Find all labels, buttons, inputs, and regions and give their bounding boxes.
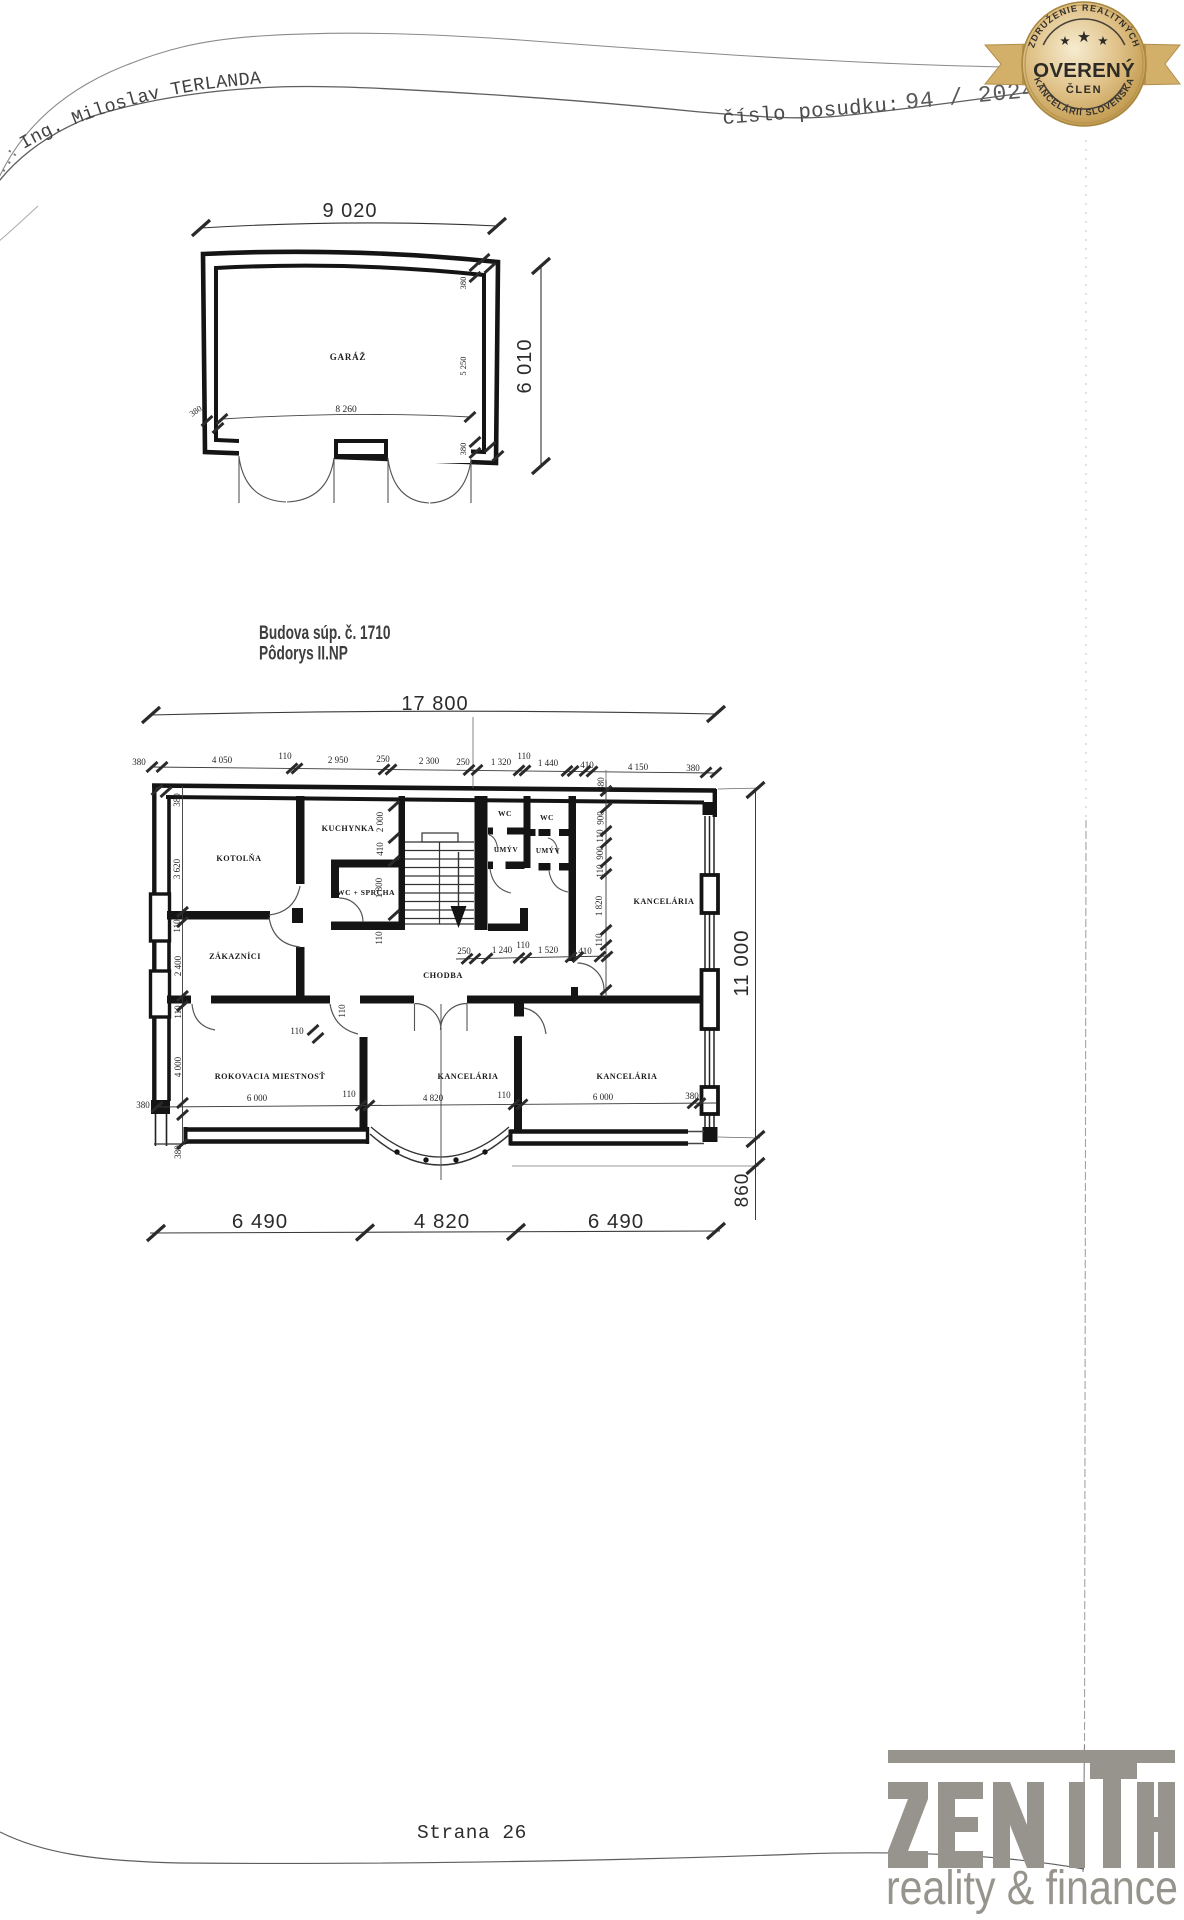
svg-text:110: 110 [517, 751, 531, 761]
svg-text:380: 380 [136, 1100, 150, 1110]
svg-text:OVERENÝ: OVERENÝ [1033, 58, 1135, 82]
svg-text:110: 110 [595, 829, 605, 843]
svg-text:4 050: 4 050 [212, 755, 233, 765]
svg-text:★: ★ [1097, 34, 1108, 48]
svg-text:3 620: 3 620 [172, 858, 182, 879]
svg-text:KANCELÁRIA: KANCELÁRIA [634, 896, 695, 906]
svg-text:6 490: 6 490 [232, 1210, 288, 1233]
svg-text:1 240: 1 240 [492, 945, 513, 955]
svg-text:410: 410 [375, 842, 385, 856]
svg-text:Budova súp. č. 1710: Budova súp. č. 1710 [259, 622, 390, 644]
svg-text:WC: WC [540, 813, 554, 822]
svg-text:KANCELÁRIA: KANCELÁRIA [597, 1071, 658, 1081]
svg-text:★: ★ [1059, 34, 1070, 48]
svg-text:1 520: 1 520 [538, 945, 559, 955]
svg-text:110: 110 [516, 940, 530, 950]
svg-text:2 400: 2 400 [173, 955, 183, 976]
svg-text:250: 250 [376, 754, 390, 764]
svg-text:★: ★ [1077, 29, 1091, 46]
svg-text:380: 380 [596, 777, 606, 791]
svg-text:6 000: 6 000 [593, 1092, 614, 1102]
svg-text:6 490: 6 490 [588, 1210, 644, 1233]
svg-text:reality & finance: reality & finance [886, 1862, 1178, 1915]
svg-text:2 300: 2 300 [419, 756, 440, 766]
svg-text:110: 110 [337, 1004, 347, 1018]
svg-text:11 000: 11 000 [730, 929, 753, 996]
svg-text:KUCHYNKA: KUCHYNKA [322, 824, 375, 833]
svg-text:110: 110 [278, 751, 292, 761]
svg-text:GARÁŽ: GARÁŽ [330, 352, 367, 362]
svg-text:UMÝV: UMÝV [536, 845, 561, 855]
svg-text:CHODBA: CHODBA [423, 971, 463, 980]
svg-text:380: 380 [458, 443, 468, 456]
svg-text:110: 110 [342, 1089, 356, 1099]
svg-text:Strana 26: Strana 26 [417, 1822, 527, 1844]
svg-text:380: 380 [132, 757, 146, 767]
svg-text:Pôdorys II.NP: Pôdorys II.NP [259, 642, 348, 664]
svg-text:1 440: 1 440 [538, 758, 559, 768]
svg-text:KOTOLŇA: KOTOLŇA [216, 853, 261, 863]
svg-text:250: 250 [456, 757, 470, 767]
svg-text:ZÁKAZNÍCI: ZÁKAZNÍCI [209, 951, 261, 961]
svg-text:1 820: 1 820 [594, 895, 604, 916]
svg-text:380: 380 [172, 793, 182, 807]
svg-text:9 020: 9 020 [322, 200, 377, 222]
svg-text:WC: WC [498, 809, 512, 818]
svg-text:WC + SPRCHA: WC + SPRCHA [337, 888, 395, 897]
svg-text:ČLEN: ČLEN [1066, 83, 1102, 96]
svg-text:4 000: 4 000 [173, 1056, 183, 1077]
svg-text:1 320: 1 320 [491, 757, 512, 767]
svg-text:380: 380 [686, 763, 700, 773]
svg-text:1 800: 1 800 [374, 877, 384, 898]
svg-text:2 000: 2 000 [375, 811, 385, 832]
svg-text:860: 860 [732, 1173, 753, 1208]
svg-text:4 150: 4 150 [628, 762, 649, 772]
svg-text:110: 110 [290, 1026, 304, 1036]
svg-text:110: 110 [374, 931, 384, 945]
svg-text:6 000: 6 000 [247, 1093, 268, 1103]
svg-text:250: 250 [457, 946, 471, 956]
svg-text:5 250: 5 250 [458, 356, 468, 375]
svg-text:ROKOVACIA MIESTNOSŤ: ROKOVACIA MIESTNOSŤ [215, 1071, 326, 1081]
svg-text:110: 110 [497, 1090, 511, 1100]
svg-text:8 260: 8 260 [335, 405, 357, 415]
svg-text:UMÝV: UMÝV [494, 844, 519, 854]
svg-text:2 950: 2 950 [328, 755, 349, 765]
svg-text:900: 900 [595, 846, 605, 860]
svg-text:4 820: 4 820 [423, 1093, 444, 1103]
svg-text:380: 380 [458, 277, 468, 290]
svg-text:KANCELÁRIA: KANCELÁRIA [438, 1071, 499, 1081]
svg-text:6 010: 6 010 [514, 338, 536, 393]
svg-text:4 820: 4 820 [414, 1210, 470, 1233]
